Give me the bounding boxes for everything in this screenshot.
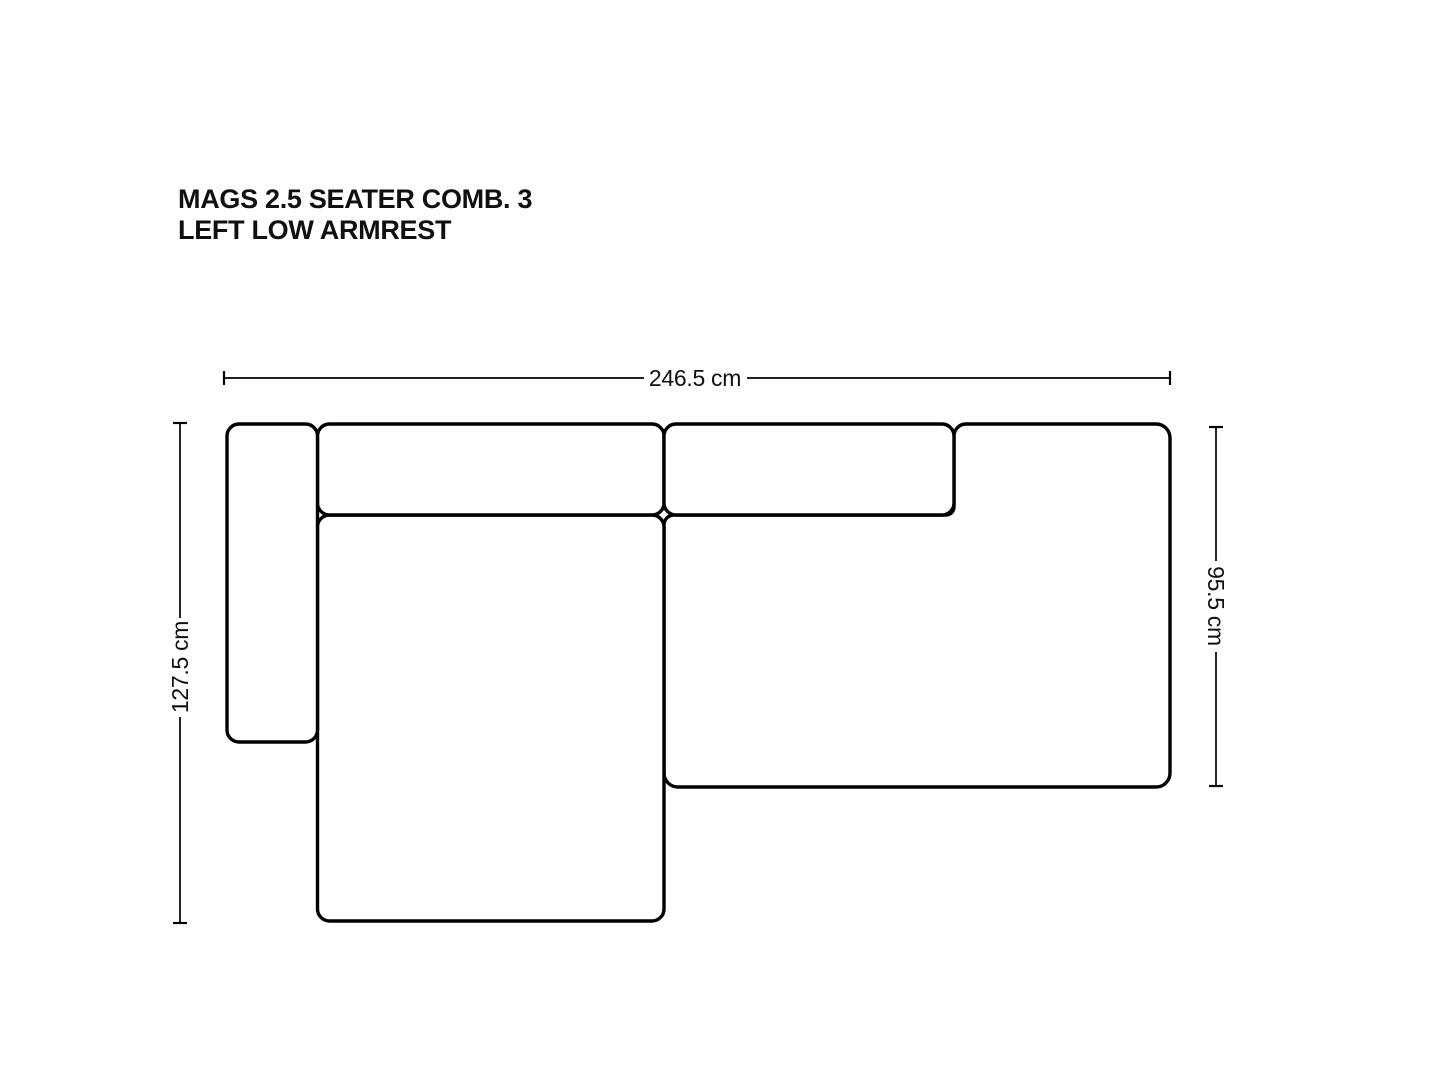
sofa-outline	[227, 424, 1170, 921]
drawing-canvas: MAGS 2.5 SEATER COMB. 3 LEFT LOW ARMREST…	[0, 0, 1445, 1087]
left-low-armrest	[227, 424, 318, 742]
chaise-longue-seat	[318, 515, 665, 921]
right-depth-label: 95.5 cm	[1203, 566, 1229, 646]
back-cushion-left	[318, 424, 665, 515]
overall-width-label: 246.5 cm	[649, 365, 741, 391]
back-cushion-right	[664, 424, 954, 515]
overall-depth-label: 127.5 cm	[167, 621, 193, 713]
sofa-dimension-diagram: 246.5 cm 127.5 cm 95.5 cm	[0, 0, 1445, 1087]
